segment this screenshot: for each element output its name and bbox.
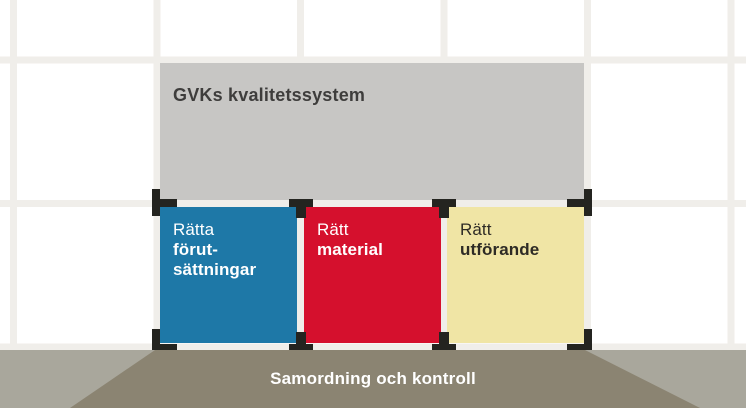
pillar-ratta-forutsattningar: Rätta förut- sättningar	[160, 207, 297, 343]
pillar-line: utförande	[460, 240, 576, 260]
pillar-line: sättningar	[173, 260, 289, 280]
tiled-wall-background	[0, 0, 746, 408]
spacer-bar	[439, 199, 449, 218]
gvk-quality-system-diagram: GVKs kvalitetssystem Rätta förut- sättni…	[0, 0, 746, 419]
pillar-ratt-material: Rätt material	[304, 207, 441, 343]
spacer-bar	[152, 199, 177, 207]
pillar-line: material	[317, 240, 433, 260]
spacer-bar	[296, 199, 306, 218]
spacer-bar	[567, 199, 592, 207]
pillar-line: Rätta	[173, 220, 289, 240]
pillar-ratt-utforande: Rätt utförande	[447, 207, 584, 343]
quality-system-header-tile: GVKs kvalitetssystem	[160, 63, 584, 200]
quality-system-title: GVKs kvalitetssystem	[173, 85, 365, 105]
floor: Samordning och kontroll	[0, 350, 746, 408]
pillar-line: Rätt	[317, 220, 433, 240]
pillar-line: förut-	[173, 240, 289, 260]
floor-label: Samordning och kontroll	[0, 350, 746, 408]
pillar-line: Rätt	[460, 220, 576, 240]
